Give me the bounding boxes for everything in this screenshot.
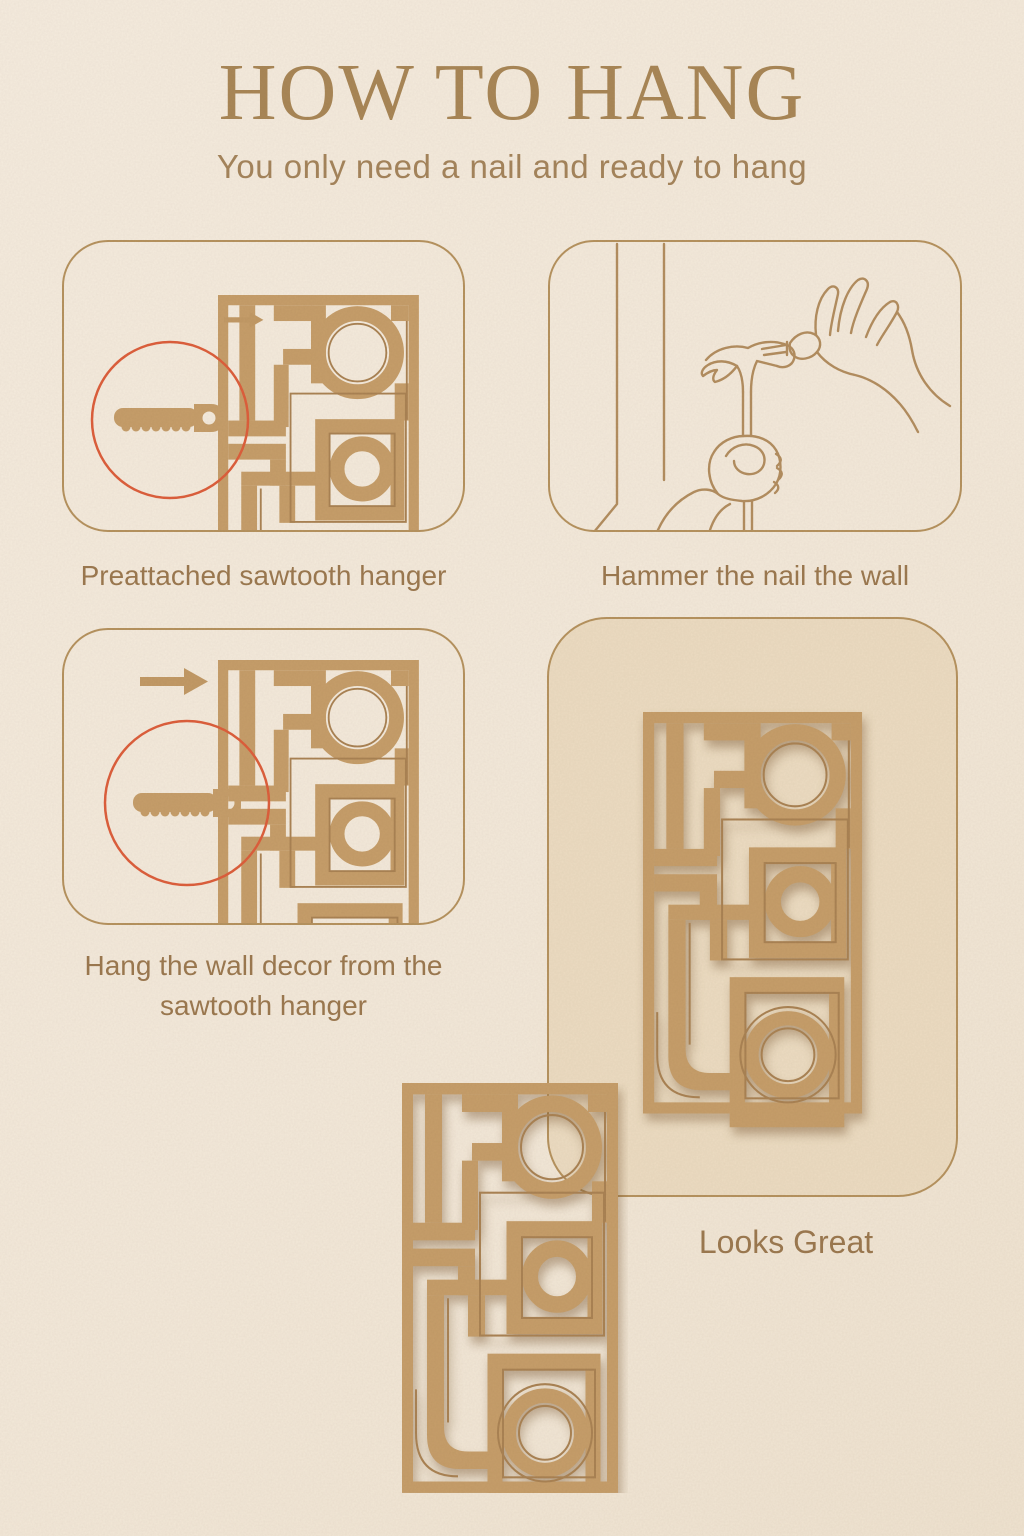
step1-caption: Preattached sawtooth hanger — [62, 556, 465, 596]
sawtooth-hanger-icon — [114, 404, 222, 432]
step4-caption: Looks Great — [586, 1222, 986, 1262]
step3-caption: Hang the wall decor from the sawtooth ha… — [42, 946, 485, 1026]
arrow-right-icon — [140, 668, 208, 695]
wall-corner-lines — [594, 244, 664, 530]
wall-decor-full — [643, 712, 862, 1120]
step3-panel — [62, 628, 465, 925]
page-subtitle: You only need a nail and ready to hang — [0, 148, 1024, 186]
fist-holding-hammer — [658, 436, 782, 530]
step2-illustration — [550, 242, 960, 530]
page-title: HOW TO HANG — [0, 48, 1024, 139]
step1-panel — [62, 240, 465, 532]
bottom-wall-decor — [402, 1083, 628, 1493]
step2-panel — [548, 240, 962, 532]
hand-holding-nail-icon — [790, 279, 950, 432]
wall-decor-partial — [218, 660, 419, 923]
step3-caption-line1: Hang the wall decor from the — [42, 946, 485, 986]
step2-caption: Hammer the nail the wall — [548, 556, 962, 596]
how-to-hang-poster: HOW TO HANG You only need a nail and rea… — [0, 0, 1024, 1536]
step3-caption-line2: sawtooth hanger — [42, 986, 485, 1026]
step3-illustration — [64, 630, 463, 923]
step1-illustration — [64, 242, 463, 530]
wall-decor-full — [402, 1083, 618, 1493]
